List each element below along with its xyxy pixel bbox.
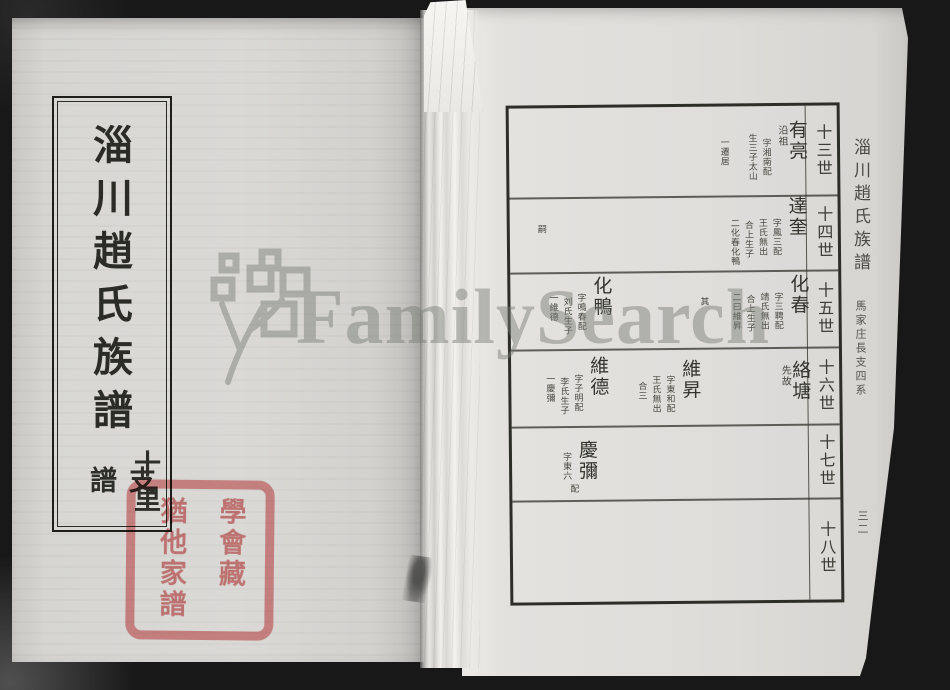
person-name: 維昇 — [679, 359, 699, 401]
annotation-fragment: 其 — [698, 297, 711, 306]
person-annotation: 生三子太山 — [747, 133, 756, 181]
person-note: 先故 — [779, 365, 790, 402]
person-annotation: 二化春化鴨 — [730, 218, 739, 266]
person-annotation: 靖氏無出 — [759, 292, 768, 330]
generation-label: 十五世 — [811, 269, 836, 346]
scanned-book-photo: 淄川趙氏族譜 十里 支譜 猶他家譜 學會藏 十三世 十四世 十五世 十六世 — [0, 0, 950, 690]
person-annotation: 一維德 — [548, 293, 557, 322]
person-entry: 維德 字子明配 李氏生子 一慶彌 — [529, 356, 608, 416]
title-frame: 淄川趙氏族譜 十里 支譜 — [52, 96, 172, 532]
person-annotation: 字湘南配 — [761, 138, 770, 176]
person-name: 絡塘先故 — [779, 360, 810, 402]
person-name: 化春 — [787, 274, 807, 316]
person-name: 維德 — [587, 356, 607, 398]
right-page: 十三世 十四世 十五世 十六世 十七世 十八世 有亮沿祖 字湘南配 生三子太山 … — [462, 8, 908, 680]
person-entry: 維昇 字東和配 王氏無出 合三 — [629, 359, 700, 414]
person-annotation: 李氏生子 — [559, 377, 568, 415]
person-entry: 慶彌 字東六 — [556, 440, 596, 482]
library-seal-stamp: 猶他家譜 學會藏 — [125, 479, 275, 641]
person-annotation: 字東六 — [562, 452, 571, 481]
person-name: 達奎 — [786, 196, 806, 238]
person-annotation: 字鳴春配 — [576, 293, 585, 331]
person-entry: 達奎 字鳳三配 王氏無出 合上生子 二化春化鴨 — [705, 196, 806, 266]
person-annotation: 刘氏生子 — [563, 297, 572, 335]
person-annotation: 王氏無出 — [651, 375, 660, 413]
left-page: 淄川趙氏族譜 十里 支譜 猶他家譜 學會藏 — [12, 18, 424, 662]
annotation-fragment: 配 — [568, 484, 581, 493]
generation-label: 十三世 — [809, 105, 834, 194]
margin-branch-label: 馬家庄長支四系 — [852, 300, 868, 398]
person-annotation: 一慶彌 — [545, 374, 554, 403]
person-name: 化鴨 — [590, 276, 610, 318]
person-annotation: 合上生子 — [744, 220, 753, 258]
row-divider — [512, 497, 840, 502]
row-divider — [512, 423, 840, 428]
generation-label: 十六世 — [811, 346, 836, 423]
seal-text-column: 學會藏 — [216, 497, 244, 590]
person-annotation: 一遷居 — [719, 137, 728, 166]
margin-book-title: 淄川趙氏族譜 — [848, 138, 873, 276]
annotation-fragment: 嗣 — [536, 224, 549, 233]
person-annotation: 合上生子 — [745, 294, 754, 332]
book-title: 淄川趙氏族譜 — [89, 124, 129, 442]
person-annotation: 字三聘配 — [773, 292, 782, 330]
person-annotation: 合三 — [637, 381, 646, 400]
generation-label: 十八世 — [813, 497, 838, 597]
person-annotation: 字東和配 — [665, 375, 674, 413]
person-name: 慶彌 — [576, 440, 596, 482]
person-entry: 化春 字三聘配 靖氏無出 合上生子 二曰維昇 — [703, 274, 808, 333]
person-name: 有亮沿祖 — [775, 120, 806, 162]
row-divider — [511, 346, 839, 351]
person-annotation: 字子明配 — [573, 374, 582, 412]
person-entry: 絡塘先故 — [781, 360, 809, 402]
page-number: 三二 — [854, 510, 870, 536]
person-note: 沿祖 — [775, 125, 786, 162]
person-annotation: 字鳳三配 — [772, 218, 781, 256]
person-annotation: 二曰維昇 — [731, 292, 740, 330]
person-annotation: 王氏無出 — [758, 218, 767, 256]
person-entry: 化鴨 字鳴春配 刘氏生子 一維德 — [532, 276, 611, 336]
generation-label: 十七世 — [812, 423, 837, 497]
generation-label: 十四世 — [810, 194, 835, 269]
generation-label-column: 十三世 十四世 十五世 十六世 十七世 十八世 — [805, 105, 842, 599]
genealogy-table: 十三世 十四世 十五世 十六世 十七世 十八世 有亮沿祖 字湘南配 生三子太山 … — [506, 102, 845, 605]
seal-text-column: 猶他家譜 — [156, 497, 184, 621]
person-entry: 有亮沿祖 字湘南配 生三子太山 一遷居 — [706, 120, 807, 181]
